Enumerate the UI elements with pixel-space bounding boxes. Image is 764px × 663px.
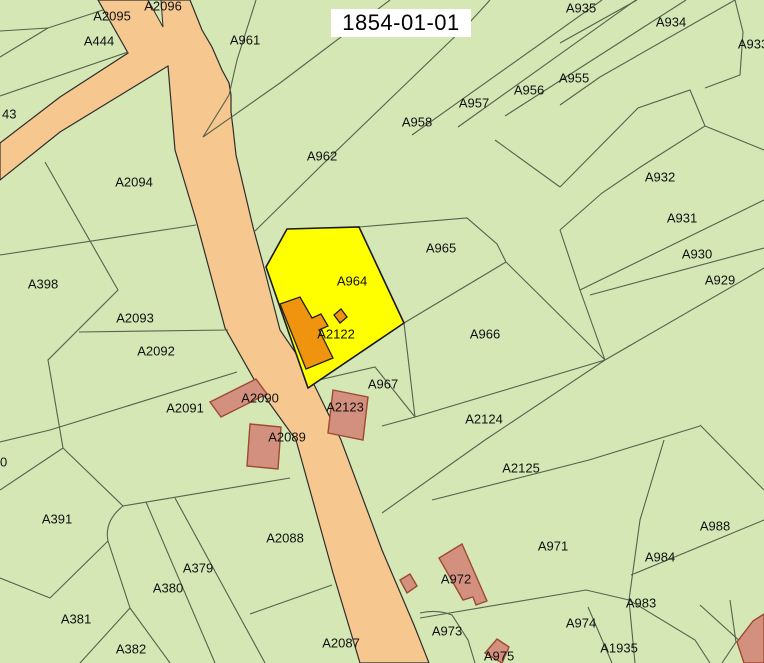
parcel-label-A966: A966 xyxy=(470,327,500,342)
parcel-label-A398: A398 xyxy=(28,277,58,292)
parcel-label-A961: A961 xyxy=(230,33,260,48)
cadastral-map[interactable]: A2095A2096A444A961A935A934A933A955A956A9… xyxy=(0,0,764,663)
parcel-label-A984: A984 xyxy=(645,550,675,565)
parcel-label-A391: A391 xyxy=(42,512,72,527)
parcel-label-A962: A962 xyxy=(307,149,337,164)
parcel-label-A933: A933 xyxy=(738,37,764,52)
parcel-label-A934: A934 xyxy=(656,15,686,30)
cadastral-map-viewport[interactable]: A2095A2096A444A961A935A934A933A955A956A9… xyxy=(0,0,764,663)
parcel-label-A974: A974 xyxy=(566,616,596,631)
parcel-label-A2094: A2094 xyxy=(115,175,153,190)
parcel-label-A935: A935 xyxy=(566,1,596,16)
parcel-label-A2123: A2123 xyxy=(326,400,364,415)
parcel-label-A929: A929 xyxy=(705,273,735,288)
parcel-label-A988: A988 xyxy=(700,519,730,534)
parcel-label-A958: A958 xyxy=(402,115,432,130)
parcel-label-A957: A957 xyxy=(459,96,489,111)
parcel-label-A380: A380 xyxy=(153,581,183,596)
parcel-label-A2093: A2093 xyxy=(116,311,154,326)
parcel-label-A2122: A2122 xyxy=(317,327,355,342)
building[interactable] xyxy=(328,390,368,440)
parcel-label-A975: A975 xyxy=(484,649,514,663)
parcel-label-A932: A932 xyxy=(645,170,675,185)
parcel-label-A965: A965 xyxy=(426,241,456,256)
parcel-label-A2088: A2088 xyxy=(266,531,304,546)
parcel-label-A964: A964 xyxy=(337,274,367,289)
parcel-label-A2096: A2096 xyxy=(144,0,182,14)
parcel-label-A973: A973 xyxy=(432,624,462,639)
parcel-label-A379: A379 xyxy=(183,561,213,576)
map-date-title: 1854-01-01 xyxy=(331,9,471,37)
parcel-label-A967: A967 xyxy=(368,377,398,392)
parcel-label-A955: A955 xyxy=(559,71,589,86)
parcel-label-A2087: A2087 xyxy=(322,636,360,651)
parcel-label-A2124: A2124 xyxy=(465,412,503,427)
parcel-label-A2092: A2092 xyxy=(137,344,175,359)
parcel-label-A1935: A1935 xyxy=(600,641,638,656)
parcel-label-A983: A983 xyxy=(626,596,656,611)
parcel-label-A972: A972 xyxy=(441,572,471,587)
parcel-label-A2095: A2095 xyxy=(93,9,131,24)
parcel-label-43: 43 xyxy=(2,107,16,122)
parcel-label-A931: A931 xyxy=(667,211,697,226)
parcel-label-A2089: A2089 xyxy=(268,430,306,445)
parcel-label-A971: A971 xyxy=(538,539,568,554)
parcel-label-A2091: A2091 xyxy=(166,401,204,416)
parcel-label-A956: A956 xyxy=(514,83,544,98)
parcel-label-A930: A930 xyxy=(682,247,712,262)
parcel-label-A382: A382 xyxy=(116,642,146,657)
parcel-label-A2125: A2125 xyxy=(502,461,540,476)
parcel-label-A2090: A2090 xyxy=(241,391,279,406)
parcel-label-0: 0 xyxy=(0,455,7,470)
parcel-label-A381: A381 xyxy=(61,612,91,627)
parcel-label-A444: A444 xyxy=(84,34,114,49)
